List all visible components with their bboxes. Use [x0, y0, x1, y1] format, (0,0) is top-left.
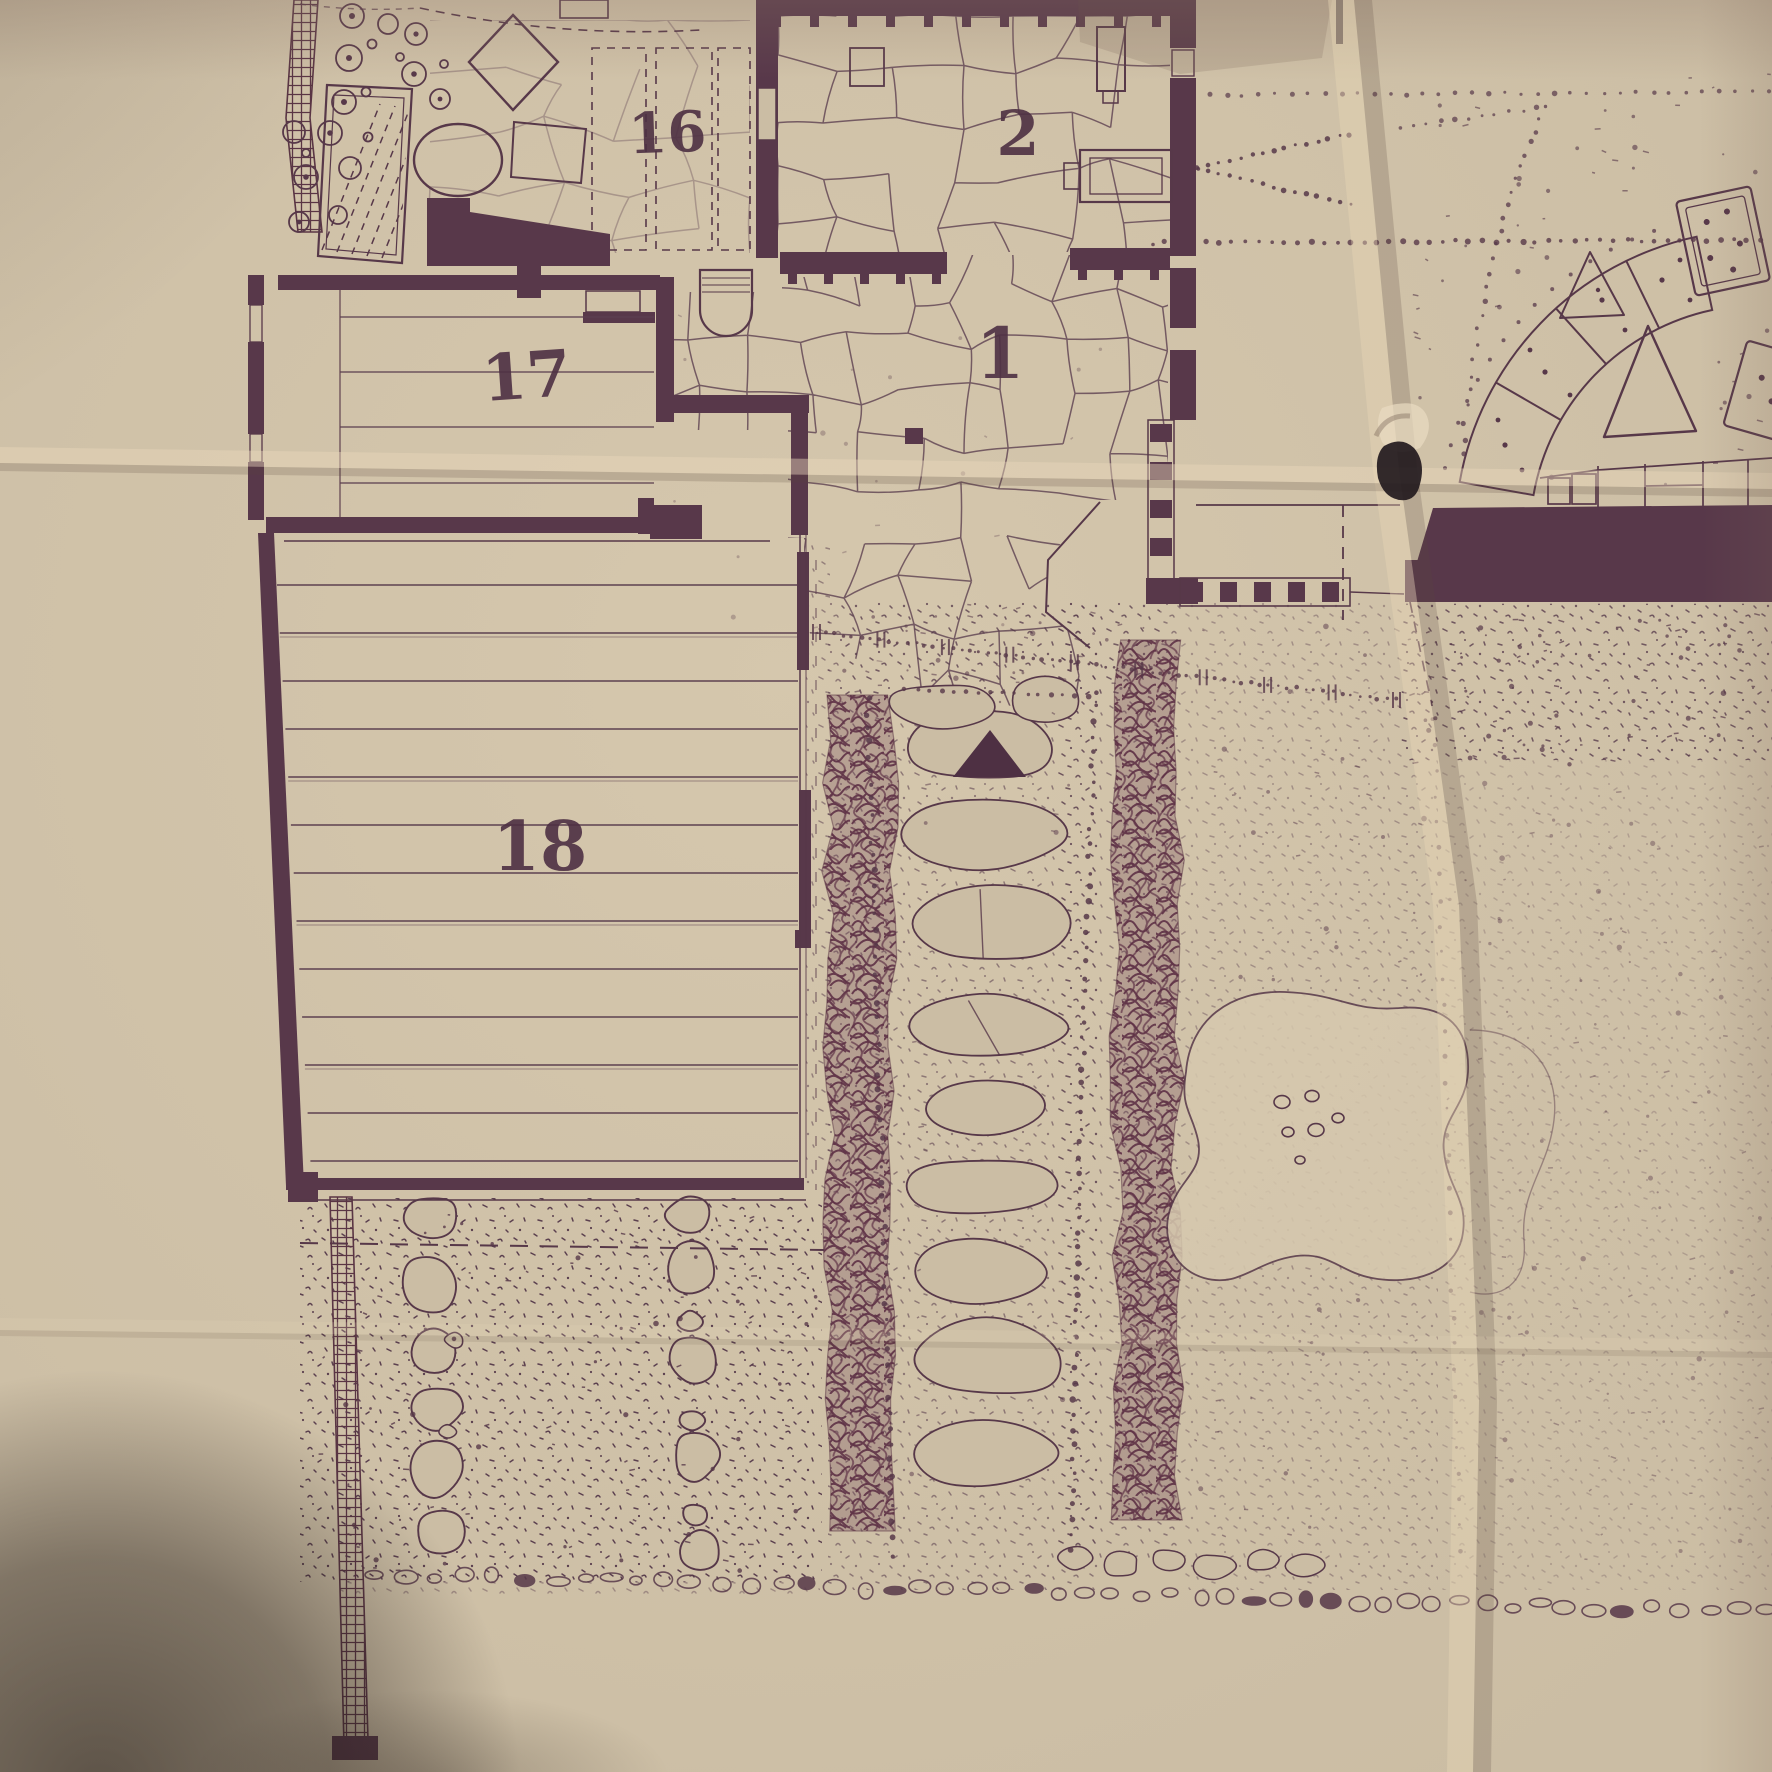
deck-divider-wall	[266, 517, 656, 533]
deck18-right-solid-b	[799, 790, 811, 940]
zone-label-1: 1	[976, 312, 1025, 395]
zone-label-18: 18	[493, 807, 588, 887]
wall-between-2-1-left	[780, 252, 947, 274]
deck18-right-solid-c	[795, 930, 811, 948]
plan-canvas: 16 2 17 1 18	[0, 0, 1772, 1772]
deck18-corner-cap	[288, 1172, 318, 1202]
vestibule-wall-a	[656, 277, 674, 422]
right-wall-c	[1170, 268, 1196, 328]
zone-label-2: 2	[996, 97, 1039, 170]
right-edge-shade	[1700, 0, 1772, 1772]
vestibule-wall-b	[673, 395, 809, 413]
zone-label-17: 17	[479, 336, 573, 417]
zone-label-16: 16	[627, 99, 707, 168]
right-wall-b	[1170, 78, 1196, 256]
room2-left-window	[758, 88, 776, 140]
deck18-right-solid-a	[797, 552, 809, 670]
vestibule-wall-d	[650, 505, 702, 539]
paving-dark-nub	[905, 428, 923, 444]
wall-between-2-1-right	[1070, 248, 1170, 270]
site-plan-photo: 16 2 17 1 18	[0, 0, 1772, 1772]
deck18-bottom-wall	[286, 1178, 804, 1190]
right-wall-d	[1170, 350, 1196, 420]
